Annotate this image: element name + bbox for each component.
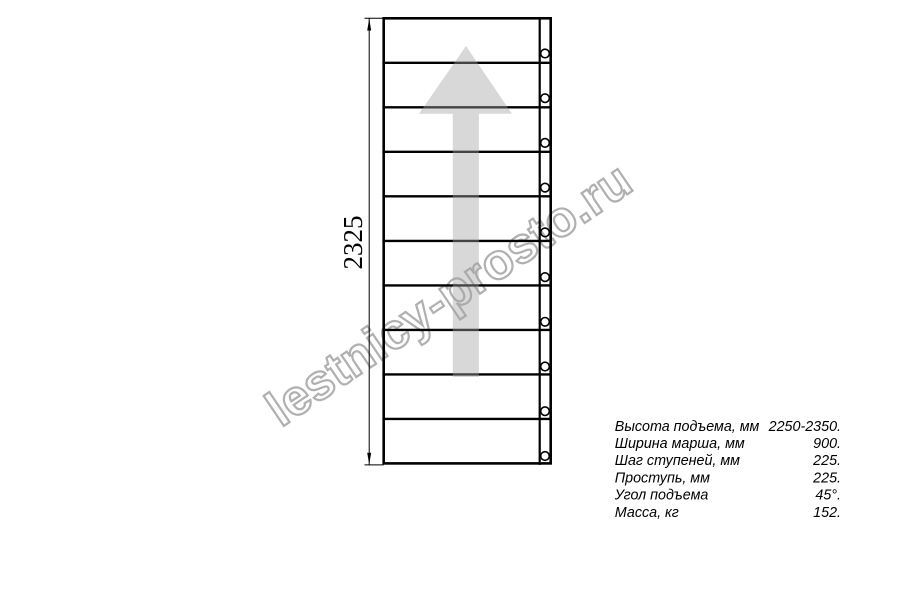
svg-text:225.: 225. <box>812 453 841 469</box>
svg-text:225.: 225. <box>812 470 841 486</box>
svg-text:Шаг ступеней, мм: Шаг ступеней, мм <box>615 453 740 469</box>
svg-text:900.: 900. <box>813 436 841 452</box>
svg-text:Высота подъема, мм: Высота подъема, мм <box>615 419 760 435</box>
svg-text:Ширина марша, мм: Ширина марша, мм <box>615 436 745 452</box>
svg-text:2250-2350.: 2250-2350. <box>768 419 841 435</box>
svg-text:Угол подъема: Угол подъема <box>614 488 709 504</box>
svg-text:45°.: 45°. <box>815 488 841 504</box>
svg-text:Проступь, мм: Проступь, мм <box>615 470 710 486</box>
svg-text:2325: 2325 <box>338 216 368 270</box>
svg-text:Масса, кг: Масса, кг <box>615 505 679 521</box>
svg-text:152.: 152. <box>813 505 841 521</box>
